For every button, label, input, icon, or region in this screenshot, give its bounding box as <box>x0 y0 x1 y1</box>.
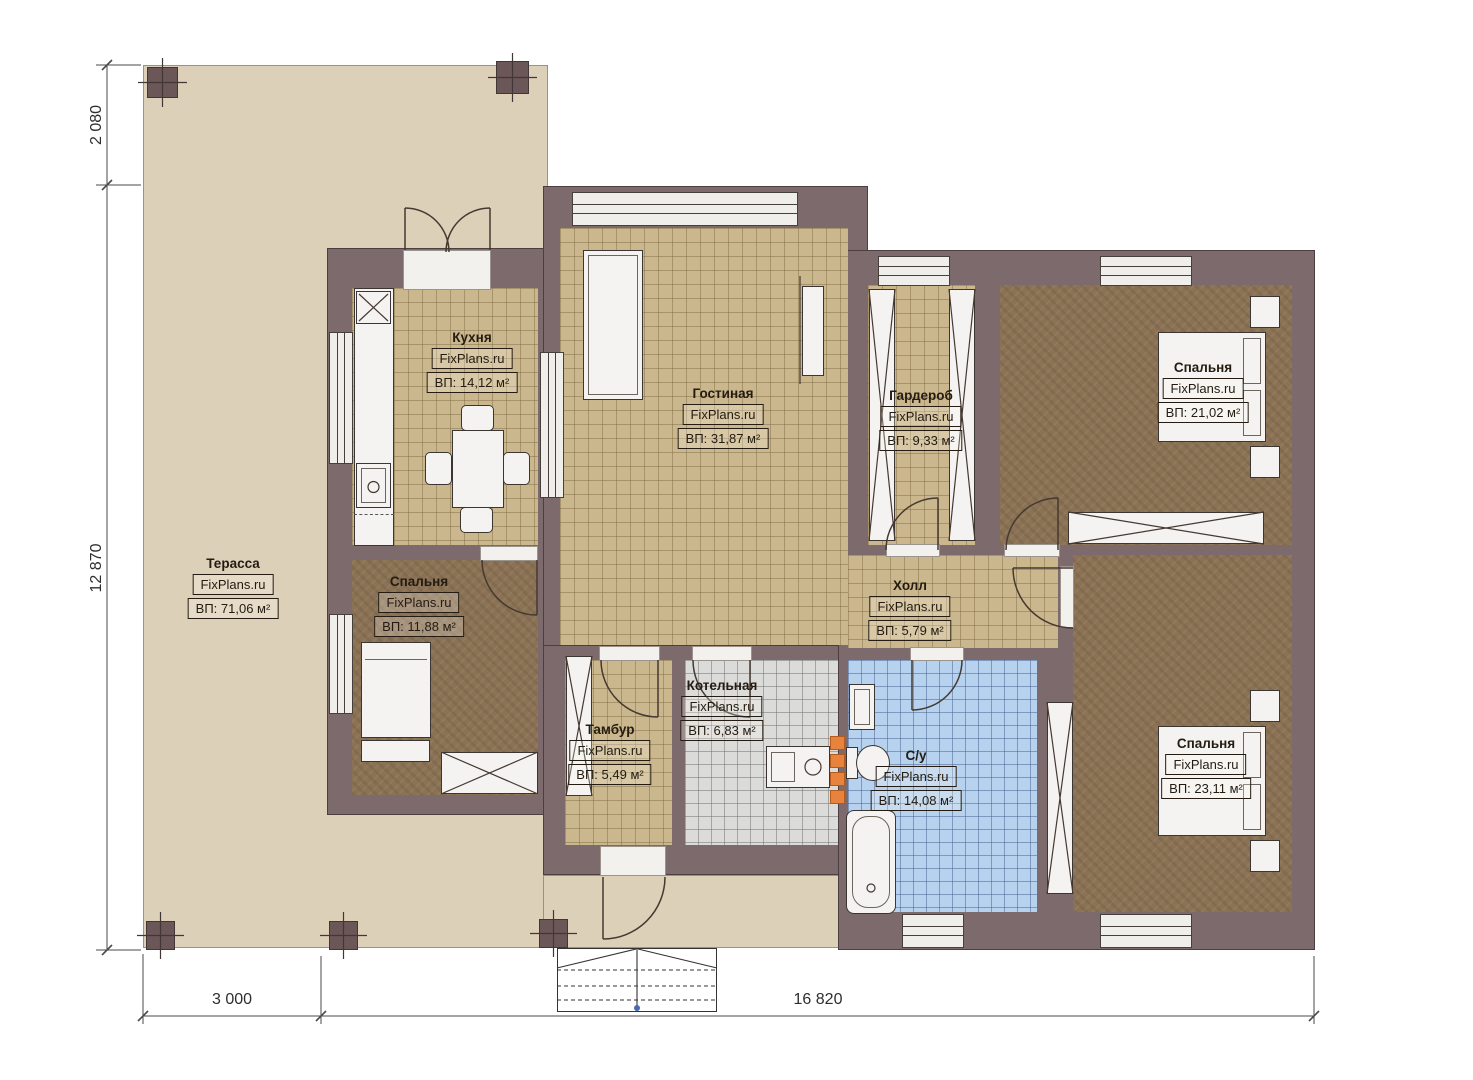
room-area: ВП: 23,11 м² <box>1161 778 1251 799</box>
room-label-boiler: Котельная FixPlans.ru ВП: 6,83 м² <box>680 678 763 741</box>
room-watermark: FixPlans.ru <box>880 406 961 427</box>
entrance-stairs <box>557 948 717 1012</box>
fridge-dashed-line <box>354 514 394 515</box>
kitchen-sink <box>356 463 391 508</box>
room-watermark: FixPlans.ru <box>869 596 950 617</box>
room-watermark: FixPlans.ru <box>682 404 763 425</box>
room-label-bedroom-bottom-right: Спальня FixPlans.ru ВП: 23,11 м² <box>1161 736 1251 799</box>
window-living-top <box>572 192 798 226</box>
room-label-living: Гостиная FixPlans.ru ВП: 31,87 м² <box>678 386 769 449</box>
door-opening-kitchen-terrace <box>403 250 491 290</box>
door-opening-bedroom-bottom <box>1060 566 1074 628</box>
room-label-hall: Холл FixPlans.ru ВП: 5,79 м² <box>868 578 951 641</box>
chair-bottom <box>460 507 493 533</box>
chimney-block <box>830 790 845 804</box>
room-watermark: FixPlans.ru <box>569 740 650 761</box>
chimney-block <box>830 754 845 768</box>
room-label-wardrobe: Гардероб FixPlans.ru ВП: 9,33 м² <box>879 388 962 451</box>
sofa <box>583 250 643 400</box>
boiler-panel <box>771 752 795 782</box>
pillar-top-right <box>496 61 529 94</box>
room-area: ВП: 5,49 м² <box>568 764 651 785</box>
pillow-line <box>365 659 427 660</box>
room-watermark: FixPlans.ru <box>1162 378 1243 399</box>
room-watermark: FixPlans.ru <box>875 766 956 787</box>
room-area: ВП: 9,33 м² <box>879 430 962 451</box>
door-opening-bathroom <box>910 647 964 661</box>
window-bedroom-top <box>1100 256 1192 286</box>
window-bathroom-bottom <box>902 914 964 948</box>
chimney-block <box>830 772 845 786</box>
floor-plan-canvas: Терасса FixPlans.ru ВП: 71,06 м² Кухня F… <box>0 0 1473 1080</box>
room-name: Кухня <box>427 330 518 345</box>
dimension-house-depth: 12 870 <box>88 544 106 593</box>
dimension-house-width: 16 820 <box>794 991 843 1009</box>
pillar-bottom-left <box>146 921 175 950</box>
tv-unit <box>802 286 824 376</box>
room-area: ВП: 71,06 м² <box>188 598 279 619</box>
room-area: ВП: 6,83 м² <box>680 720 763 741</box>
pillar-top-left <box>147 67 178 98</box>
room-label-terrace: Терасса FixPlans.ru ВП: 71,06 м² <box>188 556 279 619</box>
door-opening-vestibule <box>599 646 660 661</box>
room-name: Холл <box>868 578 951 593</box>
room-area: ВП: 14,08 м² <box>871 790 962 811</box>
bathtub-inner <box>852 816 890 908</box>
room-name: Котельная <box>680 678 763 693</box>
room-area: ВП: 14,12 м² <box>427 372 518 393</box>
room-label-vestibule: Тамбур FixPlans.ru ВП: 5,49 м² <box>568 722 651 785</box>
room-area: ВП: 11,88 м² <box>374 616 464 637</box>
room-name: Спальня <box>374 574 464 589</box>
dimension-terrace-width: 3 000 <box>212 991 252 1009</box>
room-area: ВП: 5,79 м² <box>868 620 951 641</box>
chair-right <box>503 452 530 485</box>
room-name: Тамбур <box>568 722 651 737</box>
door-opening-bedroom-left <box>480 546 538 561</box>
bed-chest <box>361 740 430 762</box>
chimney-block <box>830 736 845 750</box>
dining-table <box>452 430 504 508</box>
pillar-porch <box>539 919 568 948</box>
bathtub <box>846 810 896 914</box>
window-bedroom-bottom <box>1100 914 1192 948</box>
door-opening-boiler <box>692 646 752 661</box>
closet-bedroom-left <box>441 752 538 794</box>
room-watermark: FixPlans.ru <box>681 696 762 717</box>
room-name: Терасса <box>188 556 279 571</box>
room-label-bathroom: С/у FixPlans.ru ВП: 14,08 м² <box>871 748 962 811</box>
room-area: ВП: 21,02 м² <box>1158 402 1249 423</box>
nightstand <box>1250 446 1280 478</box>
nightstand <box>1250 296 1280 328</box>
door-opening-wardrobe <box>886 544 940 557</box>
room-label-bedroom-top-right: Спальня FixPlans.ru ВП: 21,02 м² <box>1158 360 1249 423</box>
boiler-unit <box>766 746 830 788</box>
room-label-kitchen: Кухня FixPlans.ru ВП: 14,12 м² <box>427 330 518 393</box>
window-kitchen-left <box>329 332 353 464</box>
room-watermark: FixPlans.ru <box>1165 754 1246 775</box>
door-opening-entrance <box>600 846 666 876</box>
closet-bedroom-top <box>1068 512 1264 544</box>
nightstand <box>1250 840 1280 872</box>
stove <box>356 291 391 324</box>
porch-deck <box>543 875 845 948</box>
pillar-bottom-mid <box>329 921 358 950</box>
nightstand <box>1250 690 1280 722</box>
room-area: ВП: 31,87 м² <box>678 428 769 449</box>
room-name: Гостиная <box>678 386 769 401</box>
closet-bedroom-bottom <box>1047 702 1073 894</box>
room-name: Спальня <box>1158 360 1249 375</box>
dimension-terrace-depth: 2 080 <box>88 105 106 145</box>
room-name: С/у <box>871 748 962 763</box>
bed-left <box>361 642 431 738</box>
room-watermark: FixPlans.ru <box>431 348 512 369</box>
room-watermark: FixPlans.ru <box>192 574 273 595</box>
room-name: Спальня <box>1161 736 1251 751</box>
bathroom-sink <box>849 684 875 730</box>
door-opening-bedroom-top <box>1004 544 1060 557</box>
pass-through-kitchen-living <box>540 352 564 498</box>
room-watermark: FixPlans.ru <box>378 592 459 613</box>
window-bedroom-left <box>329 614 353 714</box>
chair-left <box>425 452 452 485</box>
chair-top <box>461 405 494 431</box>
room-name: Гардероб <box>879 388 962 403</box>
window-wardrobe-top <box>878 256 950 286</box>
room-label-bedroom-left: Спальня FixPlans.ru ВП: 11,88 м² <box>374 574 464 637</box>
